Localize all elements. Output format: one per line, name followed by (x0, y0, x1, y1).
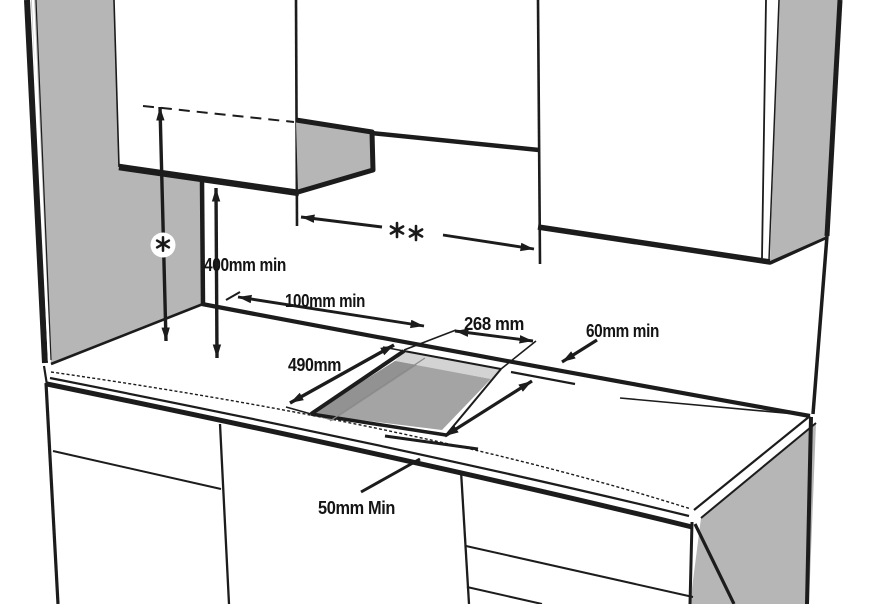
svg-text:60mm min: 60mm min (586, 321, 659, 341)
svg-text:490mm: 490mm (288, 355, 341, 375)
svg-text:268 mm: 268 mm (464, 314, 524, 334)
svg-text:400mm min: 400mm min (204, 255, 286, 275)
svg-text:50mm Min: 50mm Min (318, 498, 395, 518)
svg-text:100mm min: 100mm min (285, 291, 365, 311)
